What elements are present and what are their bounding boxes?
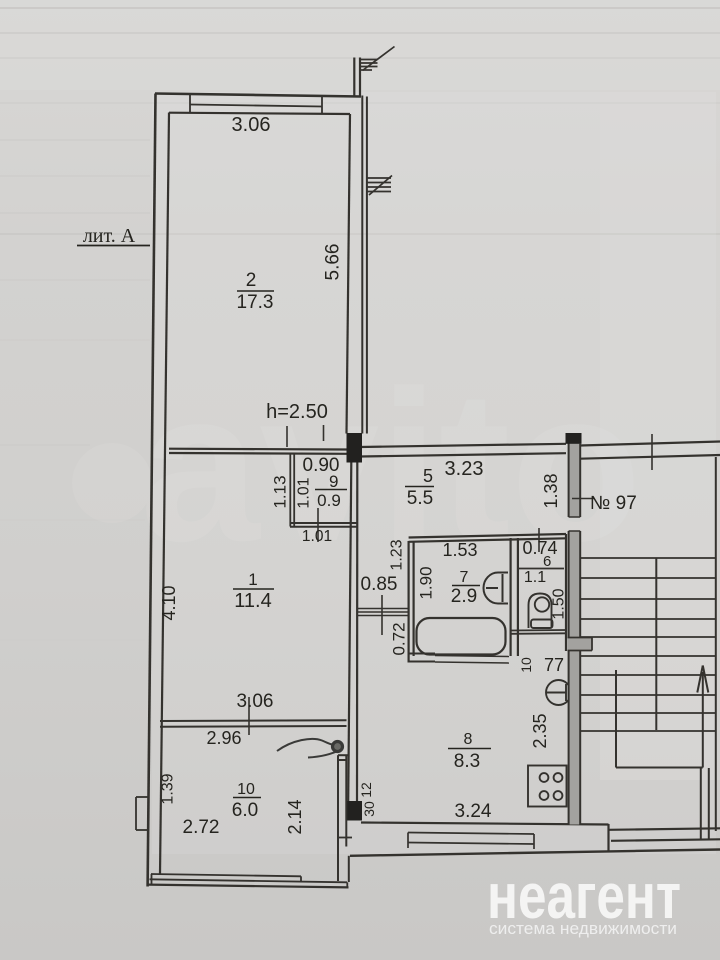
svg-text:№ 97: № 97 — [590, 493, 637, 514]
svg-text:1: 1 — [248, 570, 257, 589]
svg-text:2.96: 2.96 — [206, 728, 241, 748]
svg-text:9: 9 — [329, 472, 338, 491]
svg-text:5.5: 5.5 — [407, 488, 433, 509]
svg-text:1.90: 1.90 — [417, 566, 436, 599]
svg-text:6: 6 — [543, 553, 551, 570]
svg-text:5: 5 — [423, 466, 433, 486]
svg-text:0.72: 0.72 — [390, 622, 409, 655]
svg-text:12: 12 — [358, 782, 374, 798]
svg-text:0.85: 0.85 — [361, 574, 398, 595]
svg-text:11.4: 11.4 — [234, 590, 271, 612]
svg-text:5.66: 5.66 — [323, 244, 344, 281]
svg-text:1.1: 1.1 — [524, 569, 546, 586]
svg-text:7: 7 — [460, 569, 469, 586]
svg-text:1.23: 1.23 — [389, 539, 406, 570]
svg-text:6.0: 6.0 — [232, 800, 258, 821]
svg-text:10: 10 — [518, 657, 534, 673]
svg-text:0.74: 0.74 — [522, 538, 557, 558]
svg-text:10: 10 — [237, 781, 255, 798]
svg-text:1.01: 1.01 — [296, 477, 313, 508]
svg-text:лит. А: лит. А — [83, 225, 136, 247]
svg-text:1.53: 1.53 — [442, 540, 477, 560]
svg-text:1.13: 1.13 — [271, 475, 290, 508]
svg-text:h=2.50: h=2.50 — [266, 401, 328, 423]
svg-text:2.72: 2.72 — [183, 817, 220, 838]
svg-text:4.10: 4.10 — [159, 585, 179, 620]
svg-text:3.23: 3.23 — [445, 458, 484, 480]
svg-text:3.06: 3.06 — [232, 114, 271, 136]
svg-text:2.14: 2.14 — [285, 799, 305, 834]
svg-text:0.9: 0.9 — [317, 491, 341, 510]
svg-text:2: 2 — [246, 270, 257, 291]
svg-text:8: 8 — [464, 731, 473, 748]
svg-text:8.3: 8.3 — [454, 751, 480, 772]
svg-text:1.50: 1.50 — [551, 588, 568, 619]
svg-text:3.06: 3.06 — [237, 691, 274, 712]
svg-text:3.24: 3.24 — [455, 801, 492, 822]
svg-text:1.38: 1.38 — [541, 473, 561, 508]
svg-text:система недвижимости: система недвижимости — [489, 919, 677, 938]
svg-text:2.35: 2.35 — [530, 713, 550, 748]
svg-text:77: 77 — [544, 655, 564, 675]
svg-text:30: 30 — [361, 801, 377, 817]
svg-text:2.9: 2.9 — [451, 586, 477, 607]
svg-text:17.3: 17.3 — [237, 292, 274, 313]
svg-text:1.01: 1.01 — [302, 528, 332, 545]
svg-text:1.39: 1.39 — [160, 773, 177, 804]
